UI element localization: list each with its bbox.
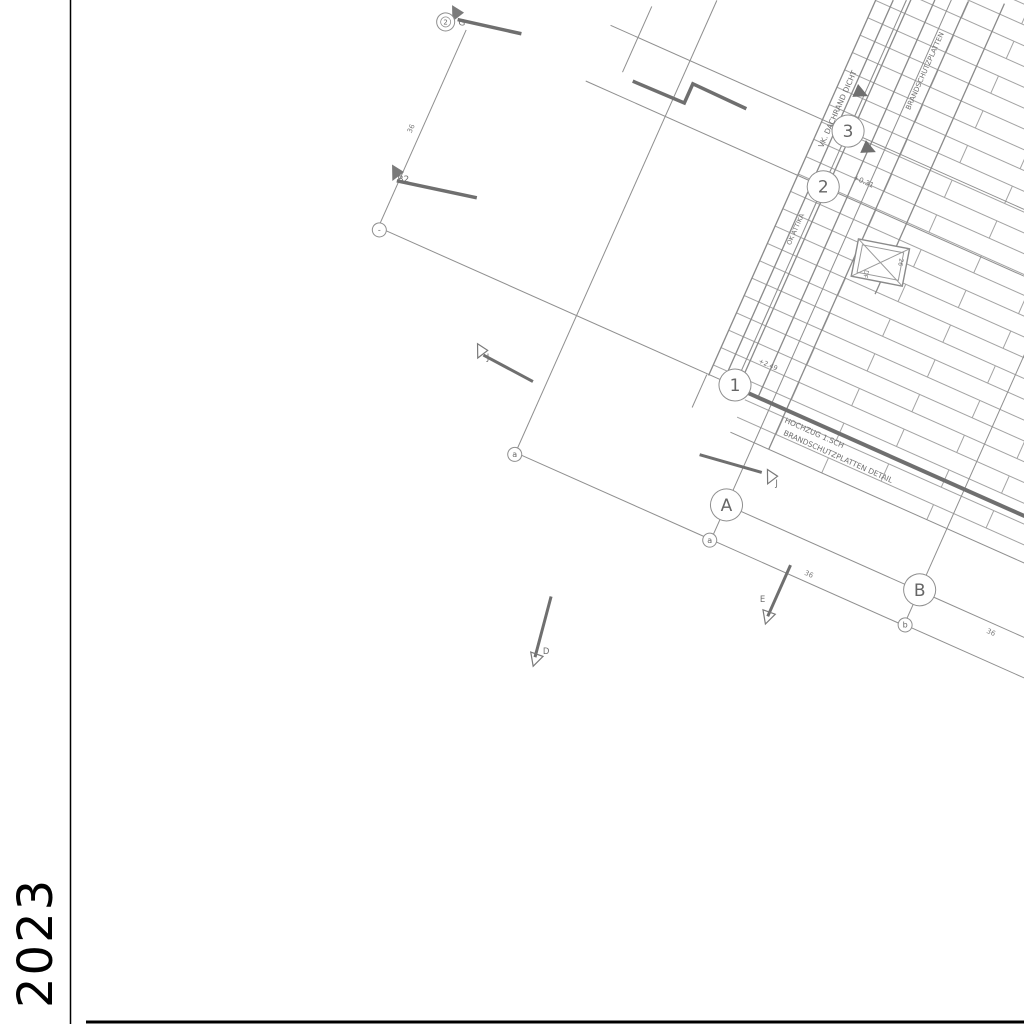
axis-bubble-label: b	[903, 621, 908, 630]
section-marker-label: J	[486, 353, 490, 363]
axis-bubble-label: a	[512, 450, 517, 459]
dimension-label: 36	[406, 123, 417, 135]
dimension-label: 36	[803, 569, 815, 580]
axis-bubble-label: a	[707, 536, 712, 545]
section-marker-label: D	[543, 647, 550, 657]
section-triangle-icon	[758, 609, 775, 626]
section-step-line	[633, 61, 747, 128]
section-marker-j-lower: J	[761, 469, 783, 490]
axis-bubble-label: 2	[443, 18, 447, 26]
axis-bubble-minor-a-left: a	[505, 445, 523, 463]
section-triangle-icon	[526, 651, 543, 668]
section-marker-b2: B2	[385, 164, 414, 189]
skylight-dim: 26	[896, 258, 904, 267]
axis-bubble-label: A	[721, 496, 733, 516]
axis-bubble-label: B	[914, 581, 926, 601]
axis-bubble-minor-end: -	[370, 221, 388, 239]
axis-bubble-label: 3	[843, 122, 854, 142]
axis-bubble-b: B	[899, 569, 941, 611]
plan-rotated-group: B2 G J J D E	[213, 0, 1024, 1024]
axis-bubble-label: 2	[818, 178, 829, 198]
drawing-sheet: B2 G J J D E	[0, 0, 1024, 1024]
section-marker-d: D	[526, 641, 554, 671]
section-marker-label: J	[774, 479, 778, 489]
sheet-year-label: 2023	[8, 878, 64, 1008]
axis-bubble-minor-b: b	[896, 616, 914, 634]
axis-bubble-a: A	[705, 484, 747, 526]
section-marker-j-upper: J	[472, 344, 495, 364]
section-marker-label: G	[458, 18, 465, 28]
section-marker-label: B2	[397, 175, 409, 185]
section-marker-label: E	[760, 595, 765, 605]
axis-bubble-label: -	[378, 226, 381, 235]
axis-bubble-label: 1	[730, 376, 741, 396]
dimension-label: 36	[985, 627, 997, 638]
axis-bubble-minor-a: a	[700, 531, 718, 549]
floor-plan-canvas: B2 G J J D E	[0, 0, 1024, 1024]
